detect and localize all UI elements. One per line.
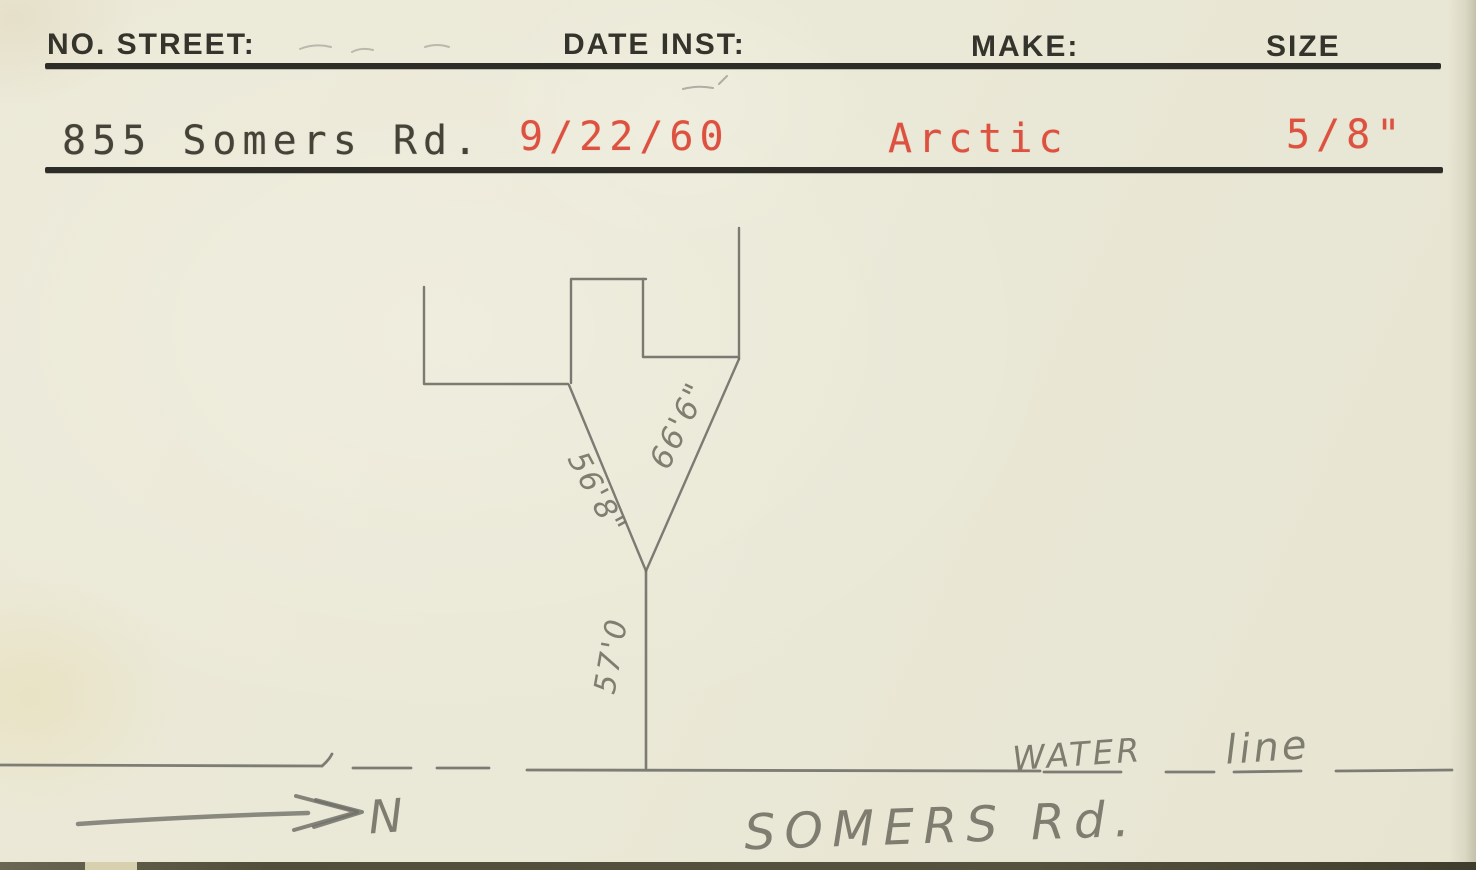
north-label: N	[367, 788, 405, 844]
record-card: NO. STREET: DATE INST: MAKE: SIZE 855 So…	[0, 0, 1476, 870]
house-outline-path	[424, 228, 739, 384]
pencil-smudge-date	[683, 76, 727, 89]
pencil-smudge-header	[300, 45, 449, 52]
water-line-label: WATER	[1011, 730, 1144, 778]
right-edge-shadow	[1449, 0, 1476, 870]
water-line-word: line	[1224, 722, 1311, 774]
bottom-edge-highlight	[85, 862, 137, 870]
street-name-label: SOMERS Rd.	[743, 791, 1139, 862]
dimension-label-right: 66'6"	[643, 376, 716, 474]
dimension-label-service: 57'0	[588, 614, 636, 696]
bottom-edge-shadow	[0, 862, 1476, 870]
site-sketch-svg: 56'8" 66'6" 57'0 N SOMERS Rd. WATER line	[0, 0, 1476, 870]
north-arrow	[78, 796, 362, 830]
dimension-label-left: 56'8"	[560, 446, 633, 541]
